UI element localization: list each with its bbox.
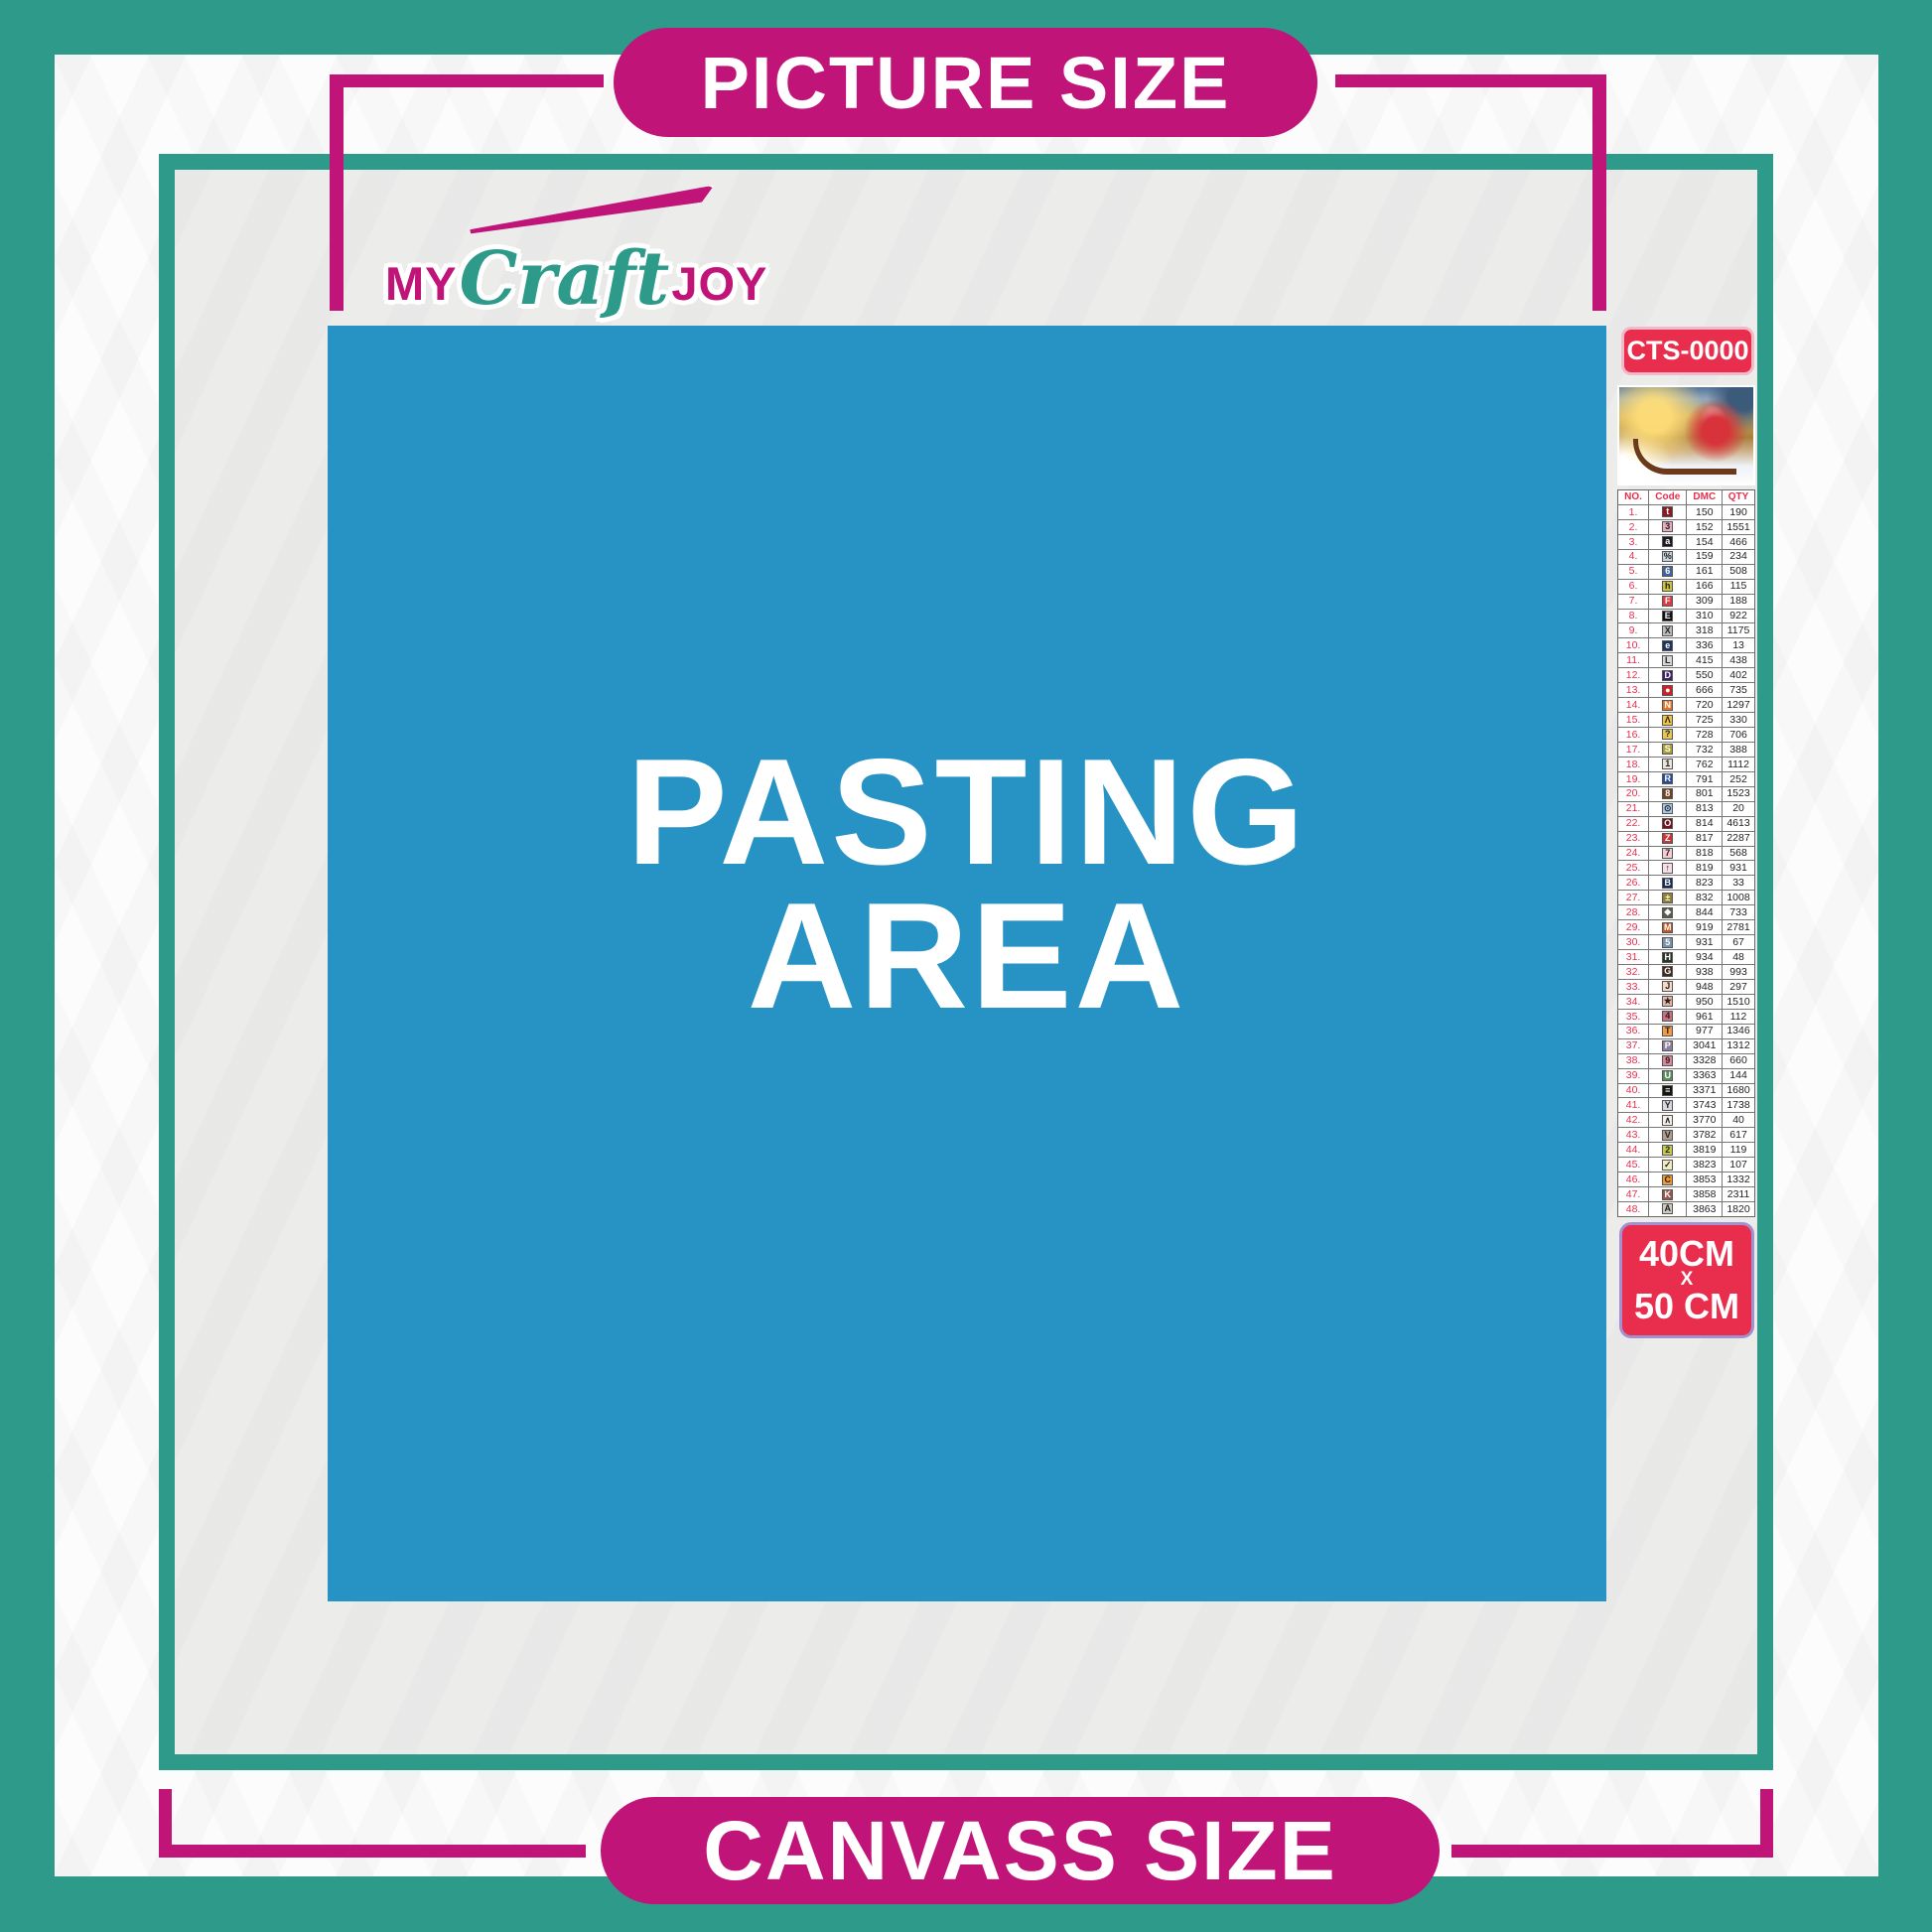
table-row: 43.V3782617 (1618, 1127, 1754, 1142)
cell-no: 37. (1618, 1039, 1648, 1053)
symbol-swatch: 7 (1662, 848, 1673, 859)
symbol-swatch: ? (1662, 729, 1673, 740)
cell-no: 35. (1618, 1010, 1648, 1024)
cell-symbol: S (1648, 743, 1686, 757)
cell-symbol: J (1648, 980, 1686, 994)
picture-bracket-right-vertical (1592, 74, 1606, 311)
cell-qty: 297 (1722, 980, 1754, 994)
brand-logo: MY Craft JOY (385, 189, 723, 313)
cell-qty: 402 (1722, 668, 1754, 682)
symbol-swatch: ⊙ (1662, 803, 1673, 814)
cell-no: 40. (1618, 1084, 1648, 1098)
canvas-size-badge: 40CM X 50 CM (1619, 1222, 1754, 1338)
legend-header-no: NO. (1618, 490, 1648, 504)
cell-qty: 188 (1722, 595, 1754, 609)
cell-symbol: a (1648, 535, 1686, 549)
cell-no: 7. (1618, 595, 1648, 609)
cell-dmc: 166 (1686, 580, 1722, 594)
symbol-swatch: Λ (1662, 715, 1673, 726)
cell-qty: 706 (1722, 728, 1754, 742)
cell-qty: 4613 (1722, 817, 1754, 831)
canvass-size-banner: CANVASS SIZE (601, 1797, 1440, 1904)
cell-dmc: 159 (1686, 550, 1722, 564)
table-row: 10.e33613 (1618, 637, 1754, 652)
cell-no: 34. (1618, 995, 1648, 1009)
cell-qty: 107 (1722, 1158, 1754, 1172)
cell-no: 2. (1618, 520, 1648, 534)
cell-dmc: 832 (1686, 891, 1722, 904)
cell-no: 14. (1618, 698, 1648, 712)
design-preview-image (1617, 385, 1755, 485)
table-row: 8.E310922 (1618, 609, 1754, 623)
symbol-swatch: N (1662, 700, 1673, 711)
table-row: 33.J948297 (1618, 979, 1754, 994)
cell-dmc: 813 (1686, 802, 1722, 816)
cell-qty: 40 (1722, 1113, 1754, 1127)
cell-symbol: F (1648, 595, 1686, 609)
table-row: 20.88011523 (1618, 786, 1754, 801)
symbol-swatch: V (1662, 1130, 1673, 1141)
cell-no: 6. (1618, 580, 1648, 594)
symbol-swatch: ✓ (1662, 1160, 1673, 1171)
table-row: 30.593167 (1618, 934, 1754, 949)
cell-dmc: 934 (1686, 950, 1722, 964)
cell-symbol: K (1648, 1187, 1686, 1201)
brand-logo-text: MY Craft JOY (385, 248, 767, 307)
cell-no: 27. (1618, 891, 1648, 904)
size-height-label: 50 CM (1634, 1290, 1739, 1323)
cell-symbol: 4 (1648, 1010, 1686, 1024)
symbol-swatch: O (1662, 818, 1673, 829)
cell-qty: 1551 (1722, 520, 1754, 534)
cell-qty: 67 (1722, 935, 1754, 949)
symbol-swatch: h (1662, 581, 1673, 592)
size-width-label: 40CM (1639, 1237, 1734, 1271)
pasting-line-2: AREA (626, 885, 1307, 1028)
cell-dmc: 415 (1686, 653, 1722, 667)
cell-symbol: M (1648, 920, 1686, 934)
cell-no: 28. (1618, 905, 1648, 919)
cell-dmc: 150 (1686, 505, 1722, 519)
cell-dmc: 318 (1686, 623, 1722, 637)
cell-dmc: 3743 (1686, 1098, 1722, 1112)
cell-dmc: 3041 (1686, 1039, 1722, 1053)
symbol-swatch: X (1662, 625, 1673, 636)
cell-qty: 1523 (1722, 787, 1754, 801)
symbol-swatch: K (1662, 1189, 1673, 1200)
picture-bracket-left-horizontal (330, 74, 604, 87)
cell-symbol: N (1648, 698, 1686, 712)
table-row: 4.%159234 (1618, 549, 1754, 564)
cell-qty: 20 (1722, 802, 1754, 816)
table-row: 13.●666735 (1618, 682, 1754, 697)
cell-qty: 735 (1722, 683, 1754, 697)
symbol-swatch: 1 (1662, 759, 1673, 769)
cell-no: 8. (1618, 610, 1648, 623)
table-row: 24.7818568 (1618, 846, 1754, 861)
cell-no: 26. (1618, 876, 1648, 890)
cell-no: 32. (1618, 965, 1648, 979)
cell-dmc: 948 (1686, 980, 1722, 994)
symbol-swatch: 9 (1662, 1055, 1673, 1066)
table-row: 28.❖844733 (1618, 904, 1754, 919)
cell-symbol: 3 (1648, 520, 1686, 534)
cell-qty: 33 (1722, 876, 1754, 890)
cell-dmc: 309 (1686, 595, 1722, 609)
cell-symbol: ? (1648, 728, 1686, 742)
cell-symbol: X (1648, 623, 1686, 637)
cell-qty: 1312 (1722, 1039, 1754, 1053)
cell-qty: 1510 (1722, 995, 1754, 1009)
table-row: 31.H93448 (1618, 949, 1754, 964)
cell-symbol: G (1648, 965, 1686, 979)
picture-bracket-right-horizontal (1335, 74, 1606, 87)
cell-dmc: 931 (1686, 935, 1722, 949)
cell-symbol: V (1648, 1128, 1686, 1142)
table-row: 23.Z8172287 (1618, 831, 1754, 846)
cell-no: 9. (1618, 623, 1648, 637)
cell-symbol: A (1648, 1202, 1686, 1216)
cell-dmc: 3823 (1686, 1158, 1722, 1172)
cell-no: 24. (1618, 847, 1648, 861)
symbol-swatch: ∧ (1662, 1115, 1673, 1126)
cell-dmc: 725 (1686, 713, 1722, 727)
cell-no: 23. (1618, 832, 1648, 846)
symbol-swatch: U (1662, 1070, 1673, 1081)
cell-qty: 993 (1722, 965, 1754, 979)
cell-no: 38. (1618, 1054, 1648, 1068)
sleigh-shape (1633, 439, 1736, 475)
cell-qty: 144 (1722, 1069, 1754, 1083)
cell-no: 13. (1618, 683, 1648, 697)
symbol-swatch: L (1662, 655, 1673, 666)
cell-qty: 112 (1722, 1010, 1754, 1024)
cell-no: 17. (1618, 743, 1648, 757)
cell-dmc: 152 (1686, 520, 1722, 534)
cell-dmc: 961 (1686, 1010, 1722, 1024)
cell-symbol: O (1648, 817, 1686, 831)
cell-dmc: 3770 (1686, 1113, 1722, 1127)
cell-qty: 1112 (1722, 758, 1754, 771)
cell-symbol: Z (1648, 832, 1686, 846)
cell-dmc: 550 (1686, 668, 1722, 682)
cell-dmc: 3863 (1686, 1202, 1722, 1216)
cell-dmc: 819 (1686, 861, 1722, 875)
cell-no: 3. (1618, 535, 1648, 549)
table-row: 18.17621112 (1618, 757, 1754, 771)
cell-qty: 568 (1722, 847, 1754, 861)
cell-dmc: 666 (1686, 683, 1722, 697)
picture-bracket-left-vertical (330, 74, 344, 311)
cell-qty: 617 (1722, 1128, 1754, 1142)
cell-symbol: ❖ (1648, 905, 1686, 919)
table-row: 32.G938993 (1618, 964, 1754, 979)
symbol-swatch: A (1662, 1203, 1673, 1214)
symbol-swatch: 5 (1662, 937, 1673, 948)
legend-header-code: Code (1648, 490, 1686, 504)
symbol-swatch: E (1662, 611, 1673, 621)
brush-swoosh-icon (469, 186, 716, 239)
pasting-line-1: PASTING (626, 741, 1307, 884)
cell-qty: 119 (1722, 1143, 1754, 1157)
product-code-badge: CTS-0000 (1621, 327, 1754, 375)
cell-dmc: 977 (1686, 1025, 1722, 1038)
cell-symbol: 5 (1648, 935, 1686, 949)
cell-no: 44. (1618, 1143, 1648, 1157)
cell-symbol: ⊙ (1648, 802, 1686, 816)
cell-dmc: 154 (1686, 535, 1722, 549)
cell-dmc: 801 (1686, 787, 1722, 801)
cell-no: 1. (1618, 505, 1648, 519)
symbol-swatch: 3 (1662, 521, 1673, 532)
cell-symbol: e (1648, 638, 1686, 652)
table-row: 39.U3363144 (1618, 1068, 1754, 1083)
table-row: 37.P30411312 (1618, 1038, 1754, 1053)
cell-no: 42. (1618, 1113, 1648, 1127)
symbol-swatch: C (1662, 1174, 1673, 1185)
canvas-bracket-left-horizontal (159, 1845, 586, 1858)
table-row: 41.Y37431738 (1618, 1097, 1754, 1112)
symbol-swatch: Z (1662, 833, 1673, 844)
symbol-swatch: J (1662, 981, 1673, 992)
cell-symbol: 8 (1648, 787, 1686, 801)
legend-header-qty: QTY (1722, 490, 1754, 504)
cell-no: 5. (1618, 565, 1648, 579)
picture-size-label: PICTURE SIZE (701, 41, 1231, 125)
cell-qty: 922 (1722, 610, 1754, 623)
cell-no: 41. (1618, 1098, 1648, 1112)
symbol-swatch: ± (1662, 893, 1673, 903)
table-row: 3.a154466 (1618, 534, 1754, 549)
cell-dmc: 817 (1686, 832, 1722, 846)
cell-no: 25. (1618, 861, 1648, 875)
symbol-swatch: 6 (1662, 566, 1673, 577)
cell-no: 36. (1618, 1025, 1648, 1038)
cell-qty: 330 (1722, 713, 1754, 727)
cell-no: 19. (1618, 772, 1648, 786)
symbol-swatch: e (1662, 640, 1673, 651)
cell-no: 21. (1618, 802, 1648, 816)
cell-no: 16. (1618, 728, 1648, 742)
cell-symbol: 9 (1648, 1054, 1686, 1068)
table-row: 15.Λ725330 (1618, 712, 1754, 727)
cell-qty: 1680 (1722, 1084, 1754, 1098)
symbol-swatch: t (1662, 506, 1673, 517)
symbol-swatch: P (1662, 1040, 1673, 1051)
cell-qty: 1738 (1722, 1098, 1754, 1112)
cell-qty: 466 (1722, 535, 1754, 549)
cell-dmc: 818 (1686, 847, 1722, 861)
cell-dmc: 791 (1686, 772, 1722, 786)
cell-no: 11. (1618, 653, 1648, 667)
cell-no: 31. (1618, 950, 1648, 964)
symbol-swatch: ● (1662, 685, 1673, 696)
cell-symbol: 7 (1648, 847, 1686, 861)
symbol-swatch: ★ (1662, 996, 1673, 1007)
cell-qty: 931 (1722, 861, 1754, 875)
cell-symbol: ★ (1648, 995, 1686, 1009)
cell-symbol: P (1648, 1039, 1686, 1053)
cell-dmc: 3853 (1686, 1173, 1722, 1186)
table-row: 6.h166115 (1618, 579, 1754, 594)
table-row: 19.R791252 (1618, 771, 1754, 786)
cell-dmc: 732 (1686, 743, 1722, 757)
cell-symbol: 1 (1648, 758, 1686, 771)
cell-qty: 1175 (1722, 623, 1754, 637)
cell-symbol: L (1648, 653, 1686, 667)
cell-symbol: ● (1648, 683, 1686, 697)
cell-dmc: 336 (1686, 638, 1722, 652)
symbol-swatch: 8 (1662, 788, 1673, 799)
table-row: 48.A38631820 (1618, 1201, 1754, 1216)
cell-dmc: 3858 (1686, 1187, 1722, 1201)
cell-symbol: h (1648, 580, 1686, 594)
canvas-bracket-right-horizontal (1451, 1845, 1773, 1858)
table-row: 1.t150190 (1618, 504, 1754, 519)
table-row: 26.B82333 (1618, 875, 1754, 890)
cell-symbol: C (1648, 1173, 1686, 1186)
cell-dmc: 3328 (1686, 1054, 1722, 1068)
cell-no: 47. (1618, 1187, 1648, 1201)
cell-qty: 2781 (1722, 920, 1754, 934)
cell-symbol: % (1648, 550, 1686, 564)
cell-symbol: R (1648, 772, 1686, 786)
color-legend-table: NO. Code DMC QTY 1.t1501902.315215513.a1… (1617, 489, 1755, 1217)
symbol-swatch: G (1662, 966, 1673, 977)
cell-no: 12. (1618, 668, 1648, 682)
cell-no: 30. (1618, 935, 1648, 949)
cell-qty: 1346 (1722, 1025, 1754, 1038)
cell-qty: 1297 (1722, 698, 1754, 712)
logo-word-craft: Craft (460, 248, 670, 311)
cell-no: 15. (1618, 713, 1648, 727)
cell-no: 33. (1618, 980, 1648, 994)
symbol-swatch: 4 (1662, 1011, 1673, 1022)
pasting-area: PASTING AREA (328, 326, 1606, 1601)
cell-dmc: 728 (1686, 728, 1722, 742)
table-row: 42.∧377040 (1618, 1112, 1754, 1127)
logo-word-my: MY (385, 260, 458, 307)
cell-symbol: Λ (1648, 713, 1686, 727)
pasting-area-label: PASTING AREA (626, 741, 1307, 1028)
table-row: 35.4961112 (1618, 1009, 1754, 1024)
cell-qty: 733 (1722, 905, 1754, 919)
picture-size-banner: PICTURE SIZE (614, 28, 1317, 137)
table-row: 16.?728706 (1618, 727, 1754, 742)
cell-dmc: 938 (1686, 965, 1722, 979)
symbol-swatch: D (1662, 670, 1673, 681)
cell-dmc: 823 (1686, 876, 1722, 890)
cell-symbol: ± (1648, 891, 1686, 904)
cell-dmc: 919 (1686, 920, 1722, 934)
cell-qty: 48 (1722, 950, 1754, 964)
cell-qty: 438 (1722, 653, 1754, 667)
cell-no: 4. (1618, 550, 1648, 564)
cell-qty: 234 (1722, 550, 1754, 564)
cell-symbol: D (1648, 668, 1686, 682)
table-row: 38.93328660 (1618, 1053, 1754, 1068)
table-row: 5.6161508 (1618, 564, 1754, 579)
table-row: 2.31521551 (1618, 519, 1754, 534)
table-row: 25.↑819931 (1618, 860, 1754, 875)
cell-qty: 13 (1722, 638, 1754, 652)
symbol-swatch: M (1662, 922, 1673, 933)
cell-symbol: ↑ (1648, 861, 1686, 875)
cell-no: 39. (1618, 1069, 1648, 1083)
cell-symbol: T (1648, 1025, 1686, 1038)
table-row: 21.⊙81320 (1618, 801, 1754, 816)
cell-qty: 388 (1722, 743, 1754, 757)
symbol-swatch: F (1662, 596, 1673, 607)
cell-symbol: H (1648, 950, 1686, 964)
canvass-size-label: CANVASS SIZE (703, 1803, 1337, 1899)
cell-dmc: 814 (1686, 817, 1722, 831)
table-row: 46.C38531332 (1618, 1172, 1754, 1186)
cell-symbol: Y (1648, 1098, 1686, 1112)
cell-symbol: 2 (1648, 1143, 1686, 1157)
cell-no: 18. (1618, 758, 1648, 771)
table-row: 27.±8321008 (1618, 890, 1754, 904)
cell-dmc: 762 (1686, 758, 1722, 771)
table-row: 36.T9771346 (1618, 1024, 1754, 1038)
cell-qty: 190 (1722, 505, 1754, 519)
symbol-swatch: Y (1662, 1100, 1673, 1111)
cell-symbol: ≡ (1648, 1084, 1686, 1098)
cell-dmc: 161 (1686, 565, 1722, 579)
cell-dmc: 310 (1686, 610, 1722, 623)
symbol-swatch: 2 (1662, 1145, 1673, 1156)
product-code-label: CTS-0000 (1626, 336, 1748, 366)
table-row: 11.L415438 (1618, 652, 1754, 667)
table-row: 17.S732388 (1618, 742, 1754, 757)
cell-symbol: 6 (1648, 565, 1686, 579)
cell-no: 48. (1618, 1202, 1648, 1216)
cell-dmc: 3782 (1686, 1128, 1722, 1142)
cell-no: 45. (1618, 1158, 1648, 1172)
symbol-swatch: H (1662, 952, 1673, 963)
symbol-swatch: S (1662, 744, 1673, 755)
cell-symbol: U (1648, 1069, 1686, 1083)
cell-no: 10. (1618, 638, 1648, 652)
table-row: 45.✓3823107 (1618, 1157, 1754, 1172)
cell-dmc: 720 (1686, 698, 1722, 712)
table-row: 47.K38582311 (1618, 1186, 1754, 1201)
cell-dmc: 3819 (1686, 1143, 1722, 1157)
cell-qty: 1820 (1722, 1202, 1754, 1216)
cell-dmc: 3363 (1686, 1069, 1722, 1083)
legend-header-dmc: DMC (1686, 490, 1722, 504)
cell-qty: 508 (1722, 565, 1754, 579)
cell-symbol: ✓ (1648, 1158, 1686, 1172)
cell-symbol: B (1648, 876, 1686, 890)
cell-qty: 660 (1722, 1054, 1754, 1068)
table-row: 9.X3181175 (1618, 622, 1754, 637)
cell-dmc: 3371 (1686, 1084, 1722, 1098)
cell-qty: 252 (1722, 772, 1754, 786)
cell-no: 43. (1618, 1128, 1648, 1142)
cell-symbol: t (1648, 505, 1686, 519)
table-row: 14.N7201297 (1618, 697, 1754, 712)
product-poster: PICTURE SIZE MY Craft JOY PASTING AREA C… (0, 0, 1932, 1932)
table-row: 22.O8144613 (1618, 816, 1754, 831)
symbol-swatch: ↑ (1662, 863, 1673, 874)
table-row: 7.F309188 (1618, 594, 1754, 609)
symbol-swatch: ❖ (1662, 907, 1673, 918)
cell-no: 20. (1618, 787, 1648, 801)
legend-header-row: NO. Code DMC QTY (1618, 490, 1754, 504)
table-row: 34.★9501510 (1618, 994, 1754, 1009)
cell-no: 22. (1618, 817, 1648, 831)
